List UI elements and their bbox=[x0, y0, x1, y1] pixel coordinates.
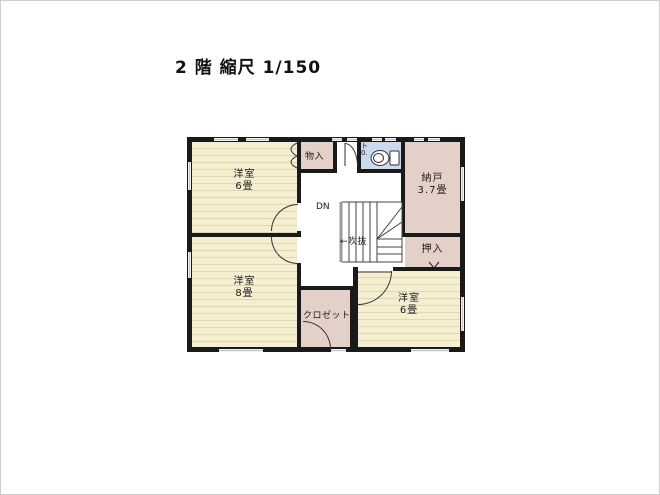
room-size: 3.7畳 bbox=[405, 185, 460, 197]
staircase bbox=[342, 202, 402, 262]
label-storage-room: 納戸 3.7畳 bbox=[405, 173, 460, 196]
floor-plan-page: 2 階 縮尺 1/150 bbox=[0, 0, 660, 495]
room-name: 洋室 bbox=[192, 276, 297, 288]
label-oshiire: 押入 bbox=[405, 244, 460, 256]
room-size: 6畳 bbox=[192, 181, 297, 193]
label-atrium: ←吹抜 bbox=[340, 234, 367, 247]
toilet-icon bbox=[371, 151, 399, 166]
staircase-outline bbox=[342, 202, 402, 262]
room-name: 押入 bbox=[405, 244, 460, 256]
oshiire-door-mark bbox=[429, 262, 439, 268]
plan-detail-overlay bbox=[1, 1, 660, 495]
room-name: 洋室 bbox=[358, 293, 460, 305]
label-bedroom-sw: 洋室 8畳 bbox=[192, 276, 297, 299]
label-hall-storage: 物入 bbox=[305, 149, 324, 162]
label-stairs-dn: DN bbox=[316, 202, 330, 212]
folding-door-icon bbox=[291, 143, 297, 168]
toilet-text-bottom: 0. bbox=[361, 150, 368, 157]
room-name: 洋室 bbox=[192, 169, 297, 181]
room-name: 納戸 bbox=[405, 173, 460, 185]
label-toilet: ト 0. bbox=[361, 143, 368, 158]
room-size: 8畳 bbox=[192, 288, 297, 300]
label-closet: クロゼット bbox=[303, 308, 351, 321]
label-bedroom-nw: 洋室 6畳 bbox=[192, 169, 297, 192]
label-bedroom-se: 洋室 6畳 bbox=[358, 293, 460, 316]
room-size: 6畳 bbox=[358, 305, 460, 317]
atrium-text: 吹抜 bbox=[348, 237, 367, 247]
atrium-arrow-icon: ← bbox=[340, 237, 348, 247]
